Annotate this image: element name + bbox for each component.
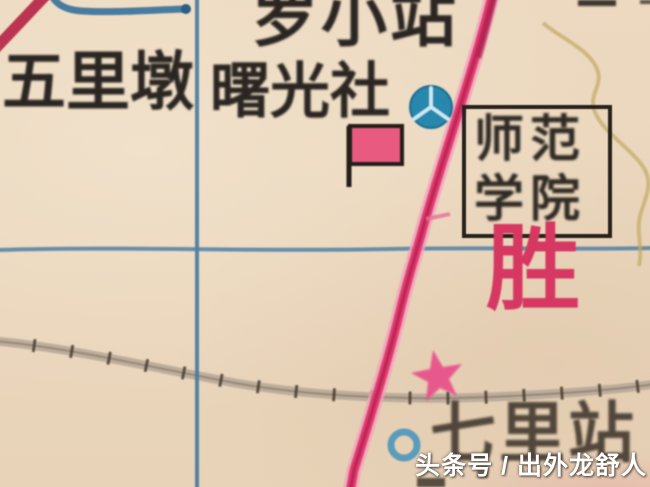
star-icon	[411, 350, 462, 401]
river-curve-top-left	[52, 0, 186, 12]
watermark: 头条号 / 出外龙舒人	[415, 446, 647, 482]
college-label-line1: 师范	[466, 109, 608, 169]
river-end-dot	[181, 4, 191, 14]
label-wulidun: 五里墩	[2, 50, 194, 114]
flag-icon	[349, 126, 402, 187]
railway-line	[0, 341, 650, 398]
label-shuguang-commune: 曙光社	[210, 62, 390, 122]
ring-icon	[391, 432, 417, 458]
label-sheng: 胜	[486, 222, 580, 316]
scanned-map: 五里墩 罗小站 曙光社 师范 学院 胜 七里站 头条号 / 出外龙舒人	[0, 0, 650, 487]
label-top-station: 罗小站	[252, 0, 459, 50]
factory-circle-icon	[410, 86, 452, 128]
red-boundary-line	[0, 0, 47, 49]
